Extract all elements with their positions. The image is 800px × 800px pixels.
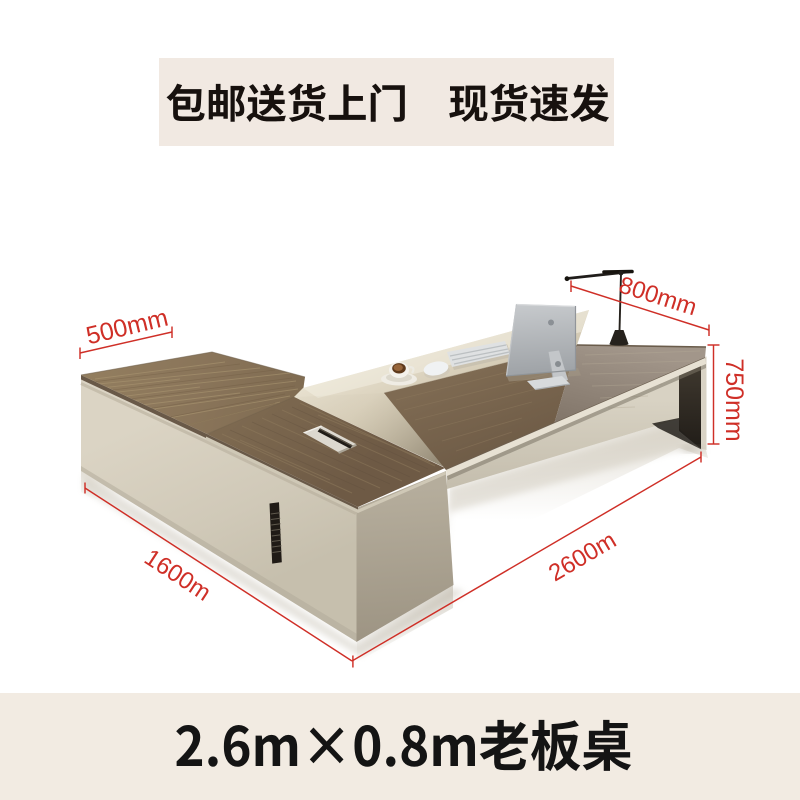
svg-text:2600m: 2600m: [544, 527, 621, 588]
svg-text:500mm: 500mm: [83, 304, 171, 351]
svg-text:750mm: 750mm: [720, 358, 748, 441]
